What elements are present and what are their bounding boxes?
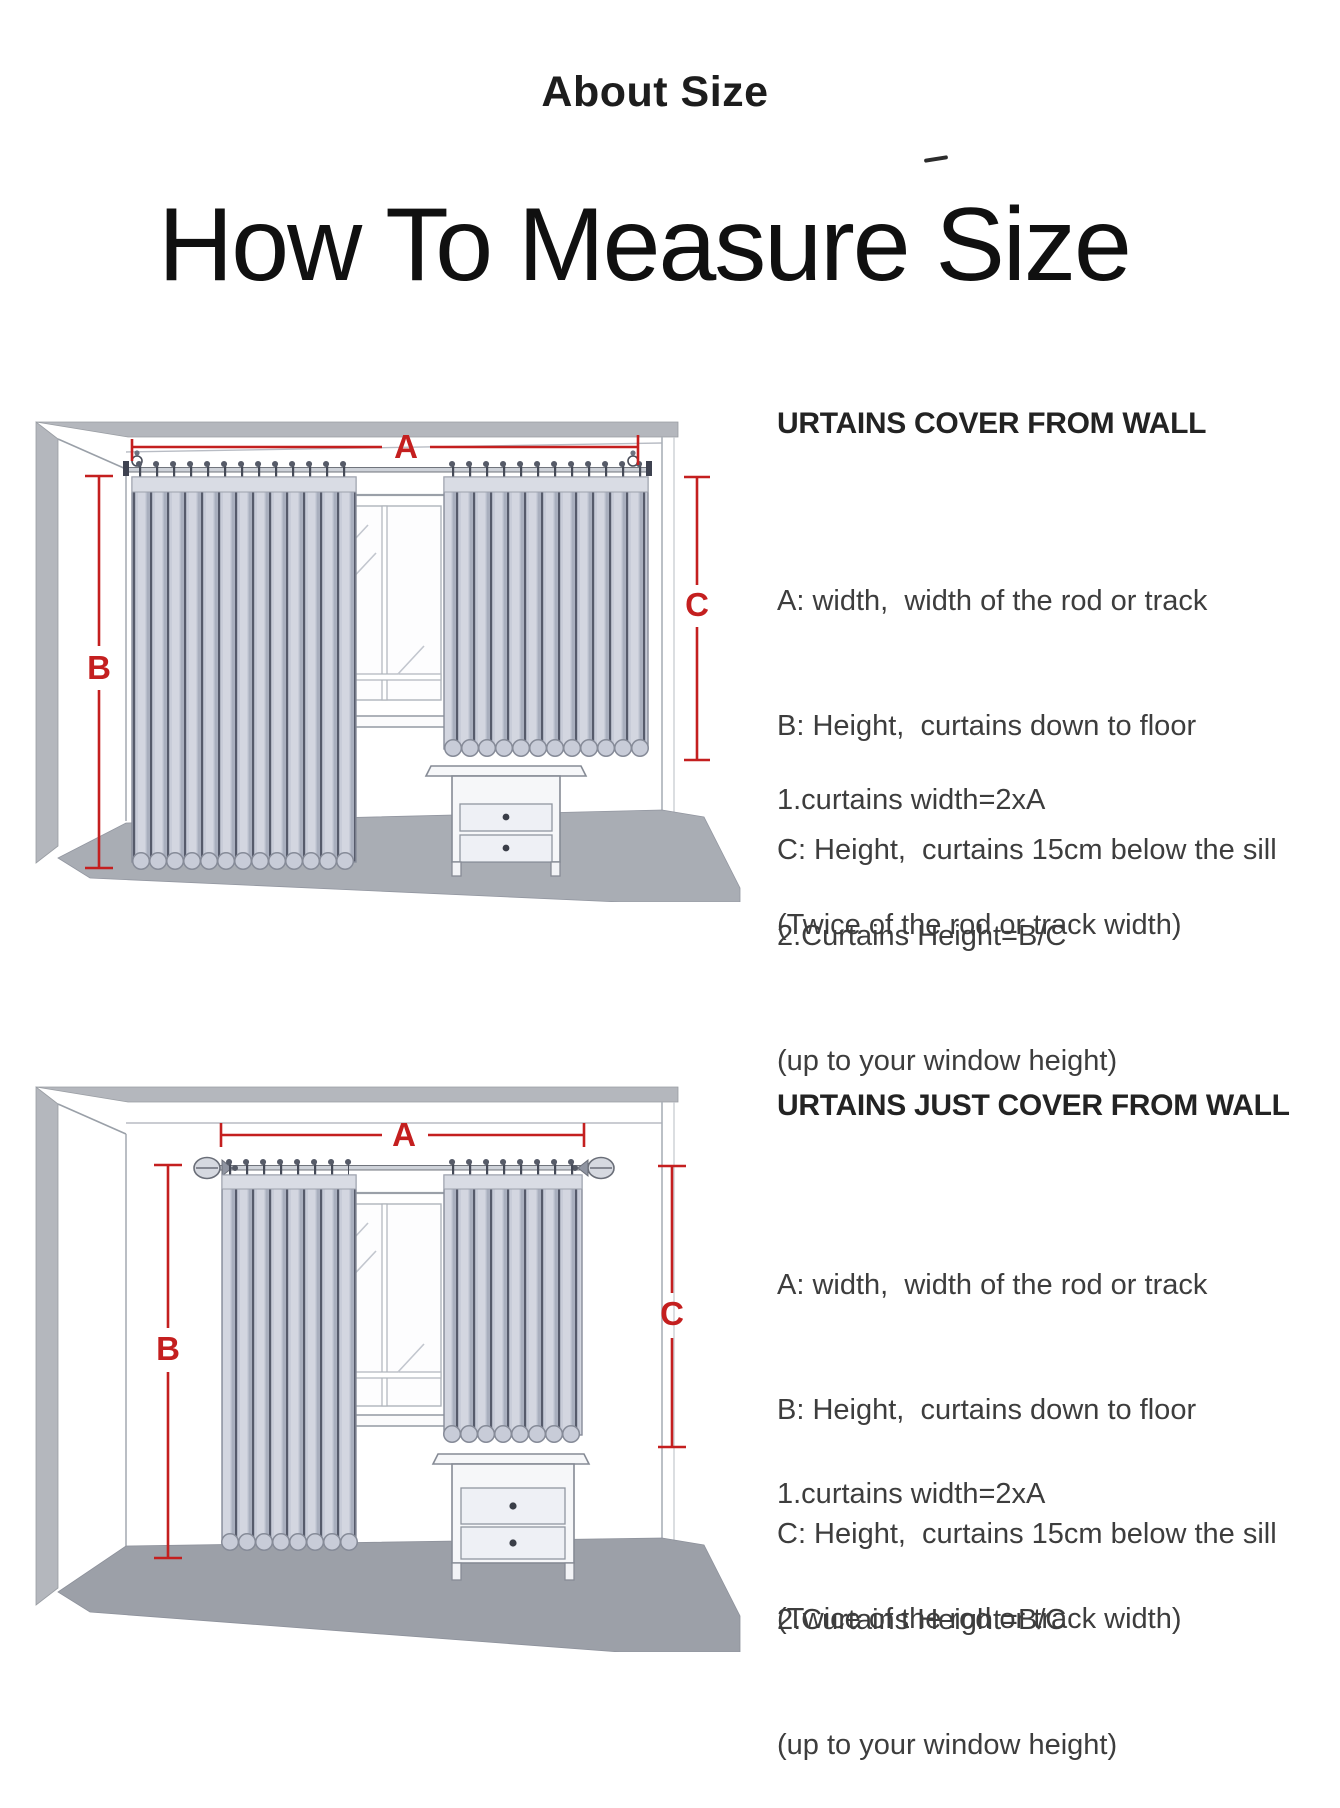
rod-bracket-right [646,461,652,476]
drawer-knob [503,814,510,821]
rod-bracket-left [123,461,129,476]
drawer-knob [509,1539,516,1546]
left-wall-band [36,1087,58,1605]
curtain-header-right [444,1175,582,1189]
definition-a: A: width, width of the rod or track [777,1265,1337,1307]
curtain-left [132,477,356,862]
page-title: How To Measure Size [0,186,1288,305]
measure-label-c: C [685,586,709,623]
section-1-heading: URTAINS COVER FROM WALL [777,407,1337,441]
room-diagram-curtains-cover-window: A B C [0,1080,742,1652]
definition-a: A: width, width of the rod or track [777,581,1337,623]
formula-height-note: (up to your window height) [777,1725,1337,1767]
ceiling-band [36,1087,678,1102]
drawer-knob [503,845,510,852]
drawer-knob [509,1502,516,1509]
corner-diagonal [58,439,126,469]
left-wall-band [36,422,58,863]
measure-label-b: B [87,649,111,686]
curtain-right [444,477,648,749]
measure-label-a: A [394,428,418,465]
measure-label-a: A [392,1116,416,1153]
measure-label-b: B [156,1330,180,1367]
room-diagram-curtains-to-floor: A B C [0,340,742,902]
curtain-header-left [132,477,356,492]
curtain-right [444,1175,582,1435]
page-subtitle: About Size [0,68,1310,117]
corner-diagonal [58,1104,126,1134]
section-2-formula-height: 2.Curtains Height=B/C (up to your window… [777,1517,1337,1808]
formula-height-line: 2.Curtains Height=B/C [777,1600,1337,1642]
page: { "page": { "title_small": "About Size",… [0,0,1340,1785]
measure-label-c: C [660,1295,684,1332]
curtain-header-right [444,477,648,492]
stray-mark [924,155,948,163]
formula-width-line: 1.curtains width=2xA [777,780,1337,822]
formula-width-line: 1.curtains width=2xA [777,1474,1337,1516]
ceiling-band [36,422,678,437]
formula-height-note: (up to your window height) [777,1041,1337,1083]
formula-height-line: 2.Curtains Height=B/C [777,916,1337,958]
curtain-header-left [222,1175,356,1189]
section-2-heading: URTAINS JUST COVER FROM WALL [777,1089,1337,1123]
floor [58,1538,740,1652]
section-1-formula-height: 2.Curtains Height=B/C (up to your window… [777,833,1337,1124]
nightstand [433,1454,589,1580]
curtain-left [222,1175,356,1543]
